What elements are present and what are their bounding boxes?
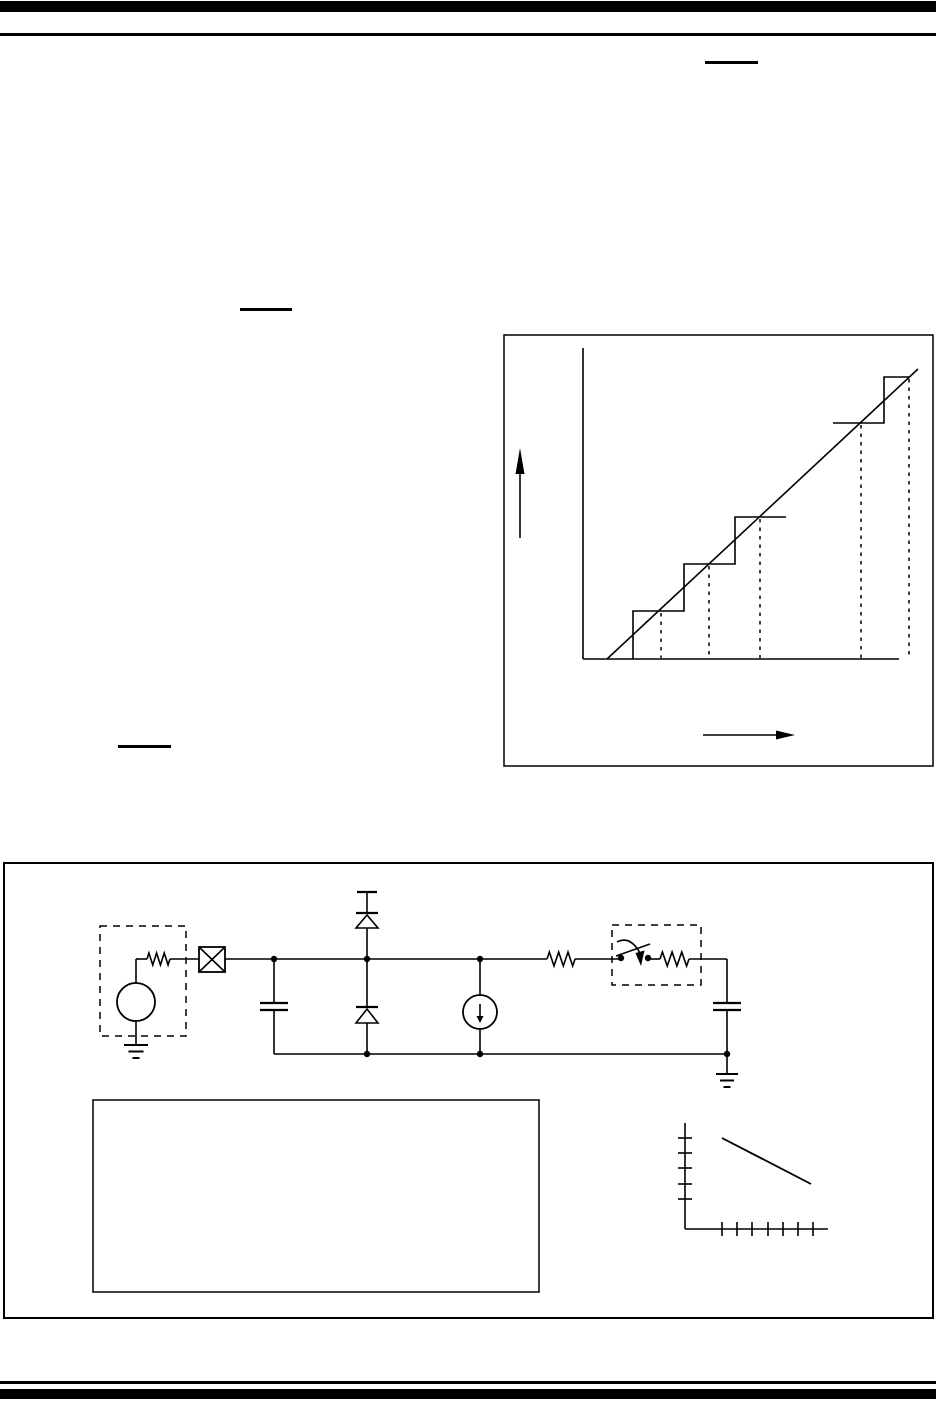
bottom-thin-rule (0, 1381, 936, 1384)
page-rules (0, 1, 936, 1399)
interconnect-resistor-icon (547, 952, 575, 966)
datasheet-page (0, 0, 936, 1412)
top-thick-bar (0, 1, 936, 12)
switch-motion-arrowhead (636, 951, 645, 967)
junction-dot-7 (477, 1051, 483, 1057)
adc-y-axis-arrowhead-icon (516, 448, 525, 474)
clamp-diode-to-vss-triangle (356, 1009, 378, 1023)
legend-box (93, 1100, 539, 1292)
adc-transfer-figure (504, 335, 933, 766)
leakage-current-source-icon (463, 995, 497, 1029)
junction-dot-6 (364, 1051, 370, 1057)
switch-blade (616, 944, 650, 956)
analog-input-model-figure (4, 863, 933, 1318)
reference-underlines (118, 61, 758, 748)
sampling-switch-dashed-box (612, 925, 701, 985)
hold-capacitor-icon (713, 1003, 741, 1010)
circuit-figure-frame (4, 863, 933, 1318)
discharge-graph (678, 1123, 828, 1236)
clamp-diode-to-vss-icon (356, 1007, 378, 1023)
discharge-decay-line (722, 1138, 811, 1184)
sampling-switch-icon (616, 940, 650, 966)
hold-ground-icon (716, 1074, 738, 1087)
adc-figure-frame (504, 335, 933, 766)
junction-dot-2 (364, 956, 370, 962)
io-pin-icon (199, 947, 225, 972)
clamp-diode-to-vdd-triangle (356, 915, 378, 928)
bottom-thick-bar (0, 1389, 936, 1399)
junction-dot-8 (724, 1051, 730, 1057)
junction-dot-1 (271, 956, 277, 962)
top-thin-rule (0, 33, 936, 36)
reference-underline-top-right (705, 61, 758, 64)
adc-staircase-lower (633, 517, 786, 659)
current-source-arrowhead (477, 1016, 484, 1023)
adc-x-axis-arrowhead-icon (776, 731, 795, 740)
clamp-diode-to-vdd-icon (356, 913, 378, 928)
sampling-resistor-icon (660, 952, 689, 966)
junction-dot-3 (477, 956, 483, 962)
adc-ideal-transfer-line (607, 369, 918, 659)
voltage-source-icon (117, 983, 155, 1021)
source-ground-icon (124, 1045, 148, 1058)
pin-capacitor-icon (260, 1003, 288, 1010)
source-resistor-icon (147, 953, 170, 965)
reference-underline-lower-left (118, 745, 171, 748)
reference-underline-mid-left (240, 308, 292, 311)
adc-staircase-upper (833, 377, 909, 423)
junction-dot-5 (645, 955, 651, 961)
page-canvas (0, 0, 936, 1412)
